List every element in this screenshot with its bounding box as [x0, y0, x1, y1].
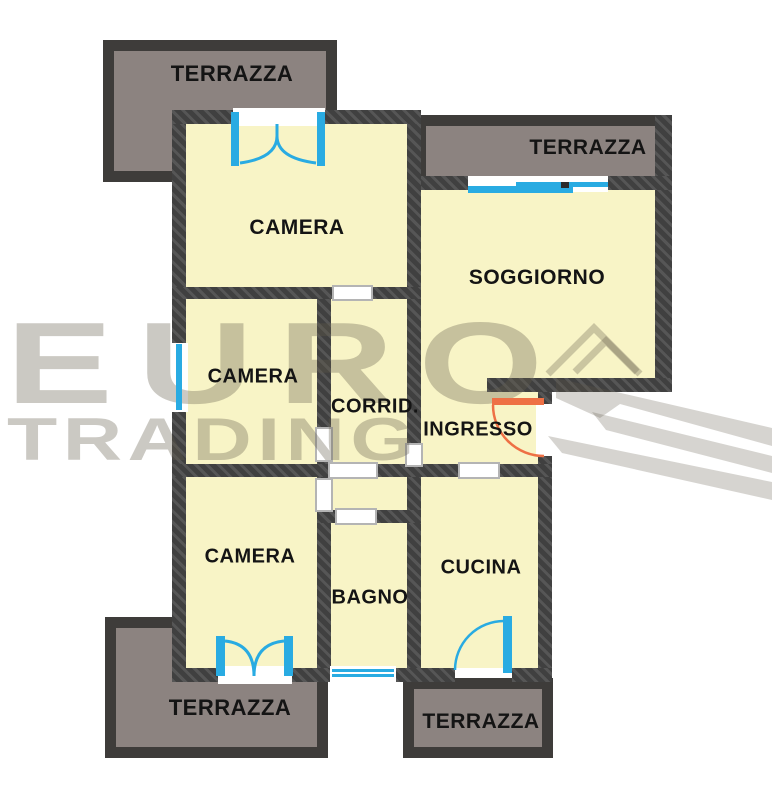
french-door-top-icon — [231, 112, 325, 166]
terrace-label-top-right: TERRAZZA — [529, 136, 646, 160]
room-label-camera-bottom: CAMERA — [205, 546, 296, 569]
room-label-camera-top: CAMERA — [249, 216, 344, 240]
bagno-window-icon — [332, 669, 394, 677]
room-label-corridoio: CORRID. — [331, 396, 419, 419]
terrace-label-top-left: TERRAZZA — [171, 61, 294, 87]
terrace-label-bottom-right: TERRAZZA — [422, 710, 539, 734]
room-label-cucina: CUCINA — [441, 557, 522, 580]
terrace-label-bottom-left: TERRAZZA — [169, 695, 292, 721]
room-label-ingresso: INGRESSO — [423, 419, 533, 442]
room-label-soggiorno: SOGGIORNO — [469, 266, 605, 290]
cucina-door-icon — [455, 616, 512, 673]
soggiorno-window-icon — [468, 182, 608, 193]
camera-mid-window-icon — [176, 344, 182, 410]
french-door-bottom-icon — [216, 636, 293, 676]
floor-plan: EURO TRADING — [0, 0, 772, 800]
room-label-camera-mid: CAMERA — [208, 366, 299, 389]
room-label-bagno: BAGNO — [332, 587, 409, 610]
